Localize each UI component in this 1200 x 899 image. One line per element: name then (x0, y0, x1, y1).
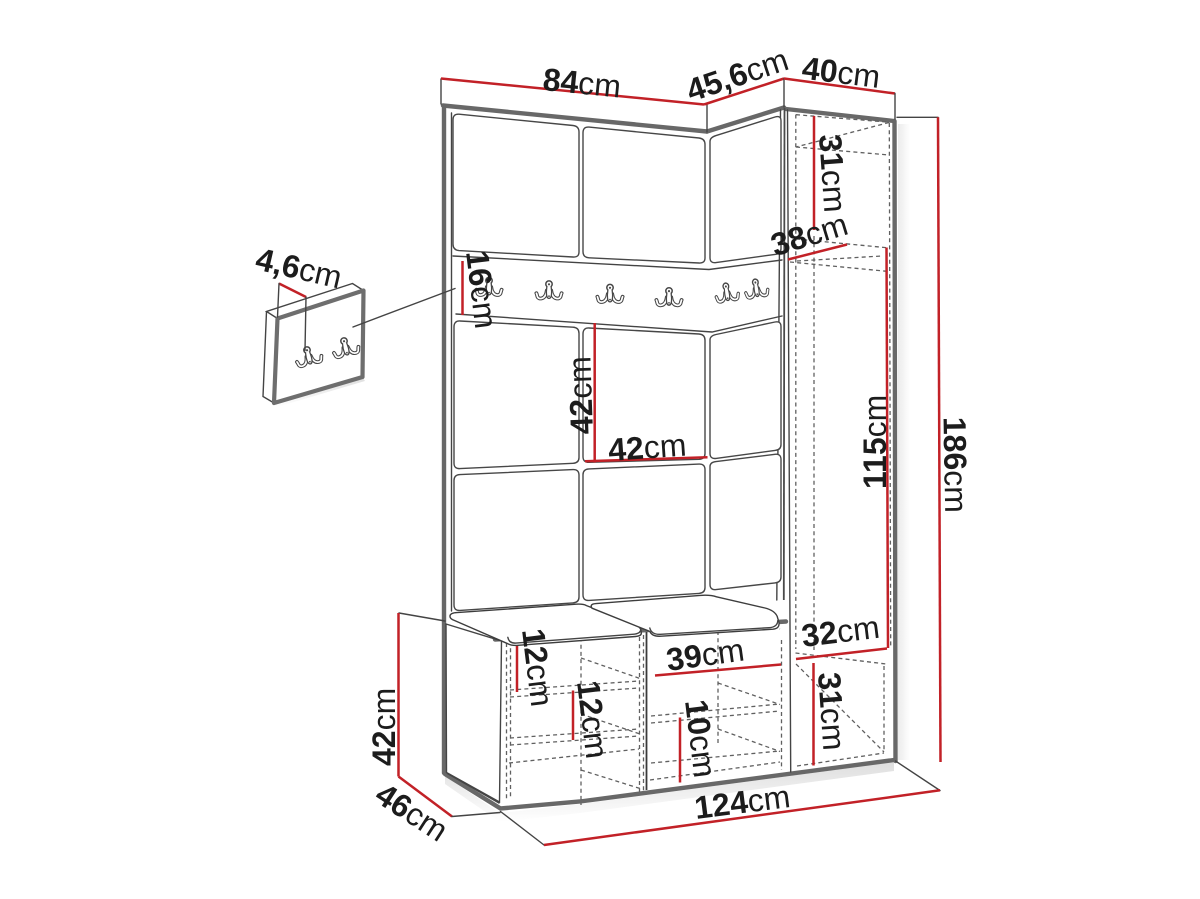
svg-text:115cm: 115cm (857, 395, 893, 489)
svg-text:84cm: 84cm (541, 61, 622, 104)
svg-text:31cm: 31cm (812, 133, 853, 214)
svg-text:42cm: 42cm (366, 688, 402, 766)
svg-text:186cm: 186cm (937, 416, 975, 513)
svg-text:31cm: 31cm (811, 671, 852, 752)
svg-text:42cm: 42cm (561, 356, 600, 435)
svg-text:42cm: 42cm (607, 427, 688, 468)
